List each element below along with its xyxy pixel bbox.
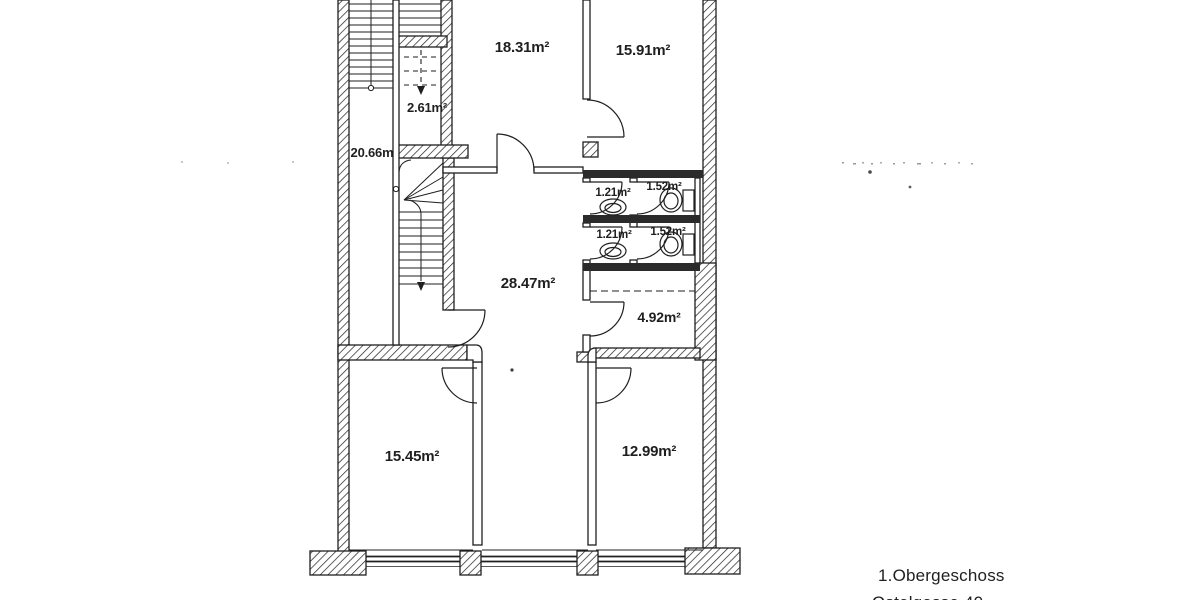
- scan-artifacts: [181, 161, 973, 372]
- wall-bath-mid-jamb1: [630, 178, 637, 182]
- label-storage: 4.92m²: [637, 309, 681, 325]
- label-bath-lower-left: 1.21m²: [596, 229, 632, 241]
- label-bath-upper-left: 1.21m²: [595, 187, 631, 199]
- wall-stair-right-lower: [443, 158, 454, 310]
- label-hallway: 28.47m²: [501, 275, 556, 292]
- sink-upper: [600, 199, 626, 215]
- bathroom-block-walls: [583, 170, 703, 271]
- door-bottom-right-room: [596, 368, 631, 403]
- wall-shaft-bottom: [397, 145, 468, 158]
- caption-address: Ostelgasse 40: [872, 593, 983, 600]
- floorplan-page: 18.31m² 15.91m² 2.61m² 20.66m 1.21m² 1.5…: [0, 0, 1200, 600]
- stair-curve: [399, 160, 411, 172]
- wall-room-br-top: [594, 348, 700, 358]
- wall-hall-bottom-left: [338, 345, 467, 360]
- door-storage: [590, 302, 624, 336]
- wall-storage-right: [695, 263, 716, 360]
- shaft-arrow-down: [417, 86, 425, 95]
- label-stair-hall: 20.66m: [351, 145, 394, 160]
- wall-bath-left-low: [583, 335, 590, 352]
- window-left: [366, 557, 460, 567]
- floorplan-canvas: 18.31m² 15.91m² 2.61m² 20.66m 1.21m² 1.5…: [0, 0, 1200, 600]
- label-bath-upper-right: 1.52m²: [646, 181, 682, 193]
- wall-corner-right: [588, 348, 596, 362]
- wall-hall-top-b: [534, 167, 583, 173]
- door-bottom-left-room: [442, 368, 477, 403]
- wall-room-bl-right: [473, 362, 482, 545]
- stair-arrow-down: [417, 282, 425, 291]
- window-wall: [349, 550, 703, 567]
- wall-stair-left: [393, 0, 399, 345]
- wall-shaft-top: [397, 36, 447, 47]
- stair-flight-upper-left: [349, 0, 393, 91]
- stair-newel-lower: [393, 186, 398, 191]
- label-bath-lower-right: 1.52m²: [650, 226, 686, 238]
- wall-stair-right-upper: [441, 0, 452, 158]
- wall-left-outer: [338, 0, 349, 552]
- door-top-left-room: [497, 134, 534, 171]
- door-stair-hall: [448, 310, 485, 347]
- wall-bath-mid: [583, 215, 700, 223]
- wall-pier-window-left: [460, 551, 481, 575]
- caption: 1.Obergeschoss Ostelgasse 40: [872, 566, 1005, 600]
- label-bottom-right-room: 12.99m²: [622, 443, 677, 460]
- wall-pier-window-right: [577, 551, 598, 575]
- sink-lower: [600, 243, 626, 259]
- wall-bath-top: [583, 170, 703, 178]
- label-bottom-left-room: 15.45m²: [385, 448, 440, 465]
- label-shaft: 2.61m²: [407, 100, 448, 115]
- wall-bath-left-jamb2: [583, 223, 590, 227]
- wall-hall-top-a: [443, 167, 497, 173]
- label-top-right-room: 15.91m²: [616, 42, 671, 59]
- stair-flight-upper-right: [399, 4, 441, 32]
- wall-left-footing: [310, 551, 366, 575]
- wall-room-br-left: [588, 362, 596, 545]
- wall-pier-partition: [583, 142, 598, 157]
- wall-bath-left-jamb1: [583, 178, 590, 182]
- stair-newel-post: [368, 85, 373, 90]
- door-top-right-room: [587, 100, 624, 137]
- stair-winding-lower: [393, 160, 443, 291]
- window-middle: [481, 557, 577, 567]
- window-right: [598, 557, 685, 567]
- label-top-left-room: 18.31m²: [495, 39, 550, 56]
- wall-right-footing: [685, 548, 740, 574]
- wall-corner-left: [467, 345, 482, 362]
- shaft-symbol: [404, 50, 438, 95]
- wall-partition-top-rooms: [583, 0, 590, 99]
- wall-bath-bottom: [583, 263, 700, 271]
- caption-floor: 1.Obergeschoss: [878, 566, 1005, 585]
